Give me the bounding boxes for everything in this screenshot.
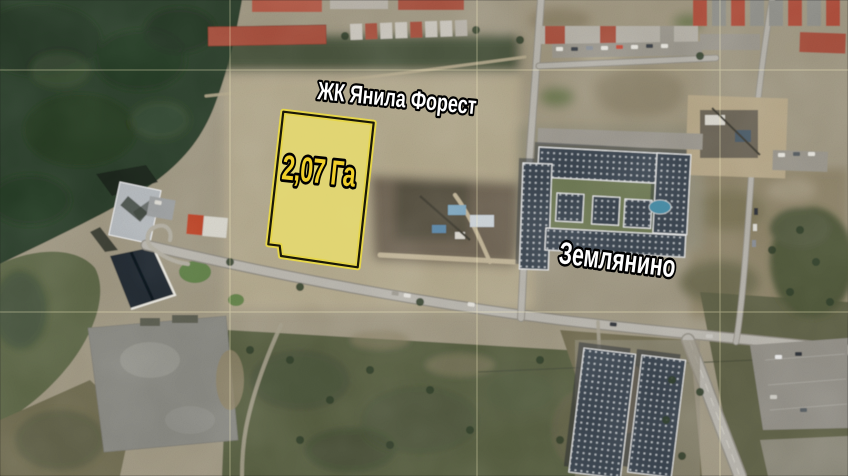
plot-area-label: 2,07 Га xyxy=(280,148,358,195)
map-canvas: 2,07 Га ЖК Янила Форест Землянино xyxy=(0,0,848,476)
imagery-mottle xyxy=(0,0,848,476)
satellite-map[interactable]: 2,07 Га ЖК Янила Форест Землянино xyxy=(0,0,848,476)
